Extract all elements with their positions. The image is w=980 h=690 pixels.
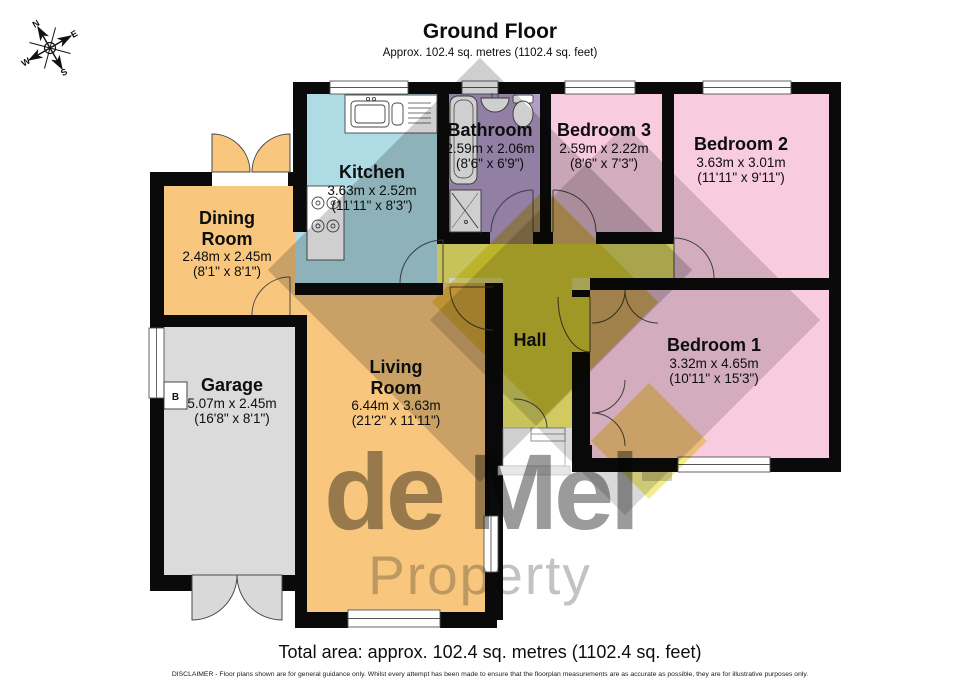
bathroom-window [462,81,498,94]
compass-e: E [69,28,79,40]
room-imperial: (11'11" x 8'3") [297,198,447,213]
room-metric: 2.48m x 2.45m [152,249,302,264]
exterior-step [642,472,672,481]
bedroom3-window [565,81,635,94]
room-metric: 6.44m x 3.63m [321,398,471,413]
garage-area [164,327,295,575]
dining-room-label: Dining Room 2.48m x 2.45m (8'1" x 8'1") [152,208,302,280]
disclaimer-text: DISCLAIMER - Floor plans shown are for g… [0,671,980,678]
compass-icon: N E S W [18,16,82,80]
hall-area [503,278,572,428]
compass-w: W [20,55,33,68]
bedroom3-label: Bedroom 3 2.59m x 2.22m (8'6" x 7'3") [529,120,679,171]
room-name: Bedroom 2 [666,134,816,155]
room-metric: 3.32m x 4.65m [639,356,789,371]
page-title: Ground Floor [0,20,980,44]
hall-corridor-area [449,244,674,278]
room-name: Hall [480,330,580,351]
living-room-bottom-window [348,610,440,627]
garage-label: Garage 5.07m x 2.45m (16'8" x 8'1") [157,375,307,426]
room-name: Dining Room [188,208,266,249]
page-subtitle: Approx. 102.4 sq. metres (1102.4 sq. fee… [0,47,980,59]
dining-french-doors [212,134,290,172]
room-imperial: (16'8" x 8'1") [157,411,307,426]
room-imperial: (11'11" x 9'11") [666,170,816,185]
bedroom1-window [678,457,770,472]
room-name: Bedroom 3 [529,120,679,141]
room-metric: 3.63m x 2.52m [297,183,447,198]
room-imperial: (10'11" x 15'3") [639,371,789,386]
room-name: Garage [157,375,307,396]
total-area-text: Total area: approx. 102.4 sq. metres (11… [0,642,980,663]
room-metric: 5.07m x 2.45m [157,396,307,411]
room-name: Bedroom 1 [639,335,789,356]
compass-s: S [59,66,69,78]
room-metric: 2.59m x 2.22m [529,141,679,156]
kitchen-window [330,81,408,94]
living-room-label: Living Room 6.44m x 3.63m (21'2" x 11'11… [321,357,471,429]
compass-n: N [31,18,42,30]
room-imperial: (21'2" x 11'11") [321,413,471,428]
bedroom2-label: Bedroom 2 3.63m x 3.01m (11'11" x 9'11") [666,134,816,185]
floorplan-page: B de Mel Pr [0,0,980,690]
living-room-area [307,295,485,612]
garage-doors [192,575,282,620]
living-room-side-window [484,516,498,572]
bedroom1-label: Bedroom 1 3.32m x 4.65m (10'11" x 15'3") [639,335,789,386]
bedroom2-area [674,94,829,278]
room-name: Living Room [357,357,435,398]
bathroom-door-gap [490,232,533,244]
room-metric: 3.63m x 3.01m [666,155,816,170]
bedroom3-door-gap [553,232,596,244]
room-imperial: (8'1" x 8'1") [152,264,302,279]
bedroom2-window [703,81,791,94]
hall-label: Hall [480,330,580,351]
room-imperial: (8'6" x 7'3") [529,156,679,171]
